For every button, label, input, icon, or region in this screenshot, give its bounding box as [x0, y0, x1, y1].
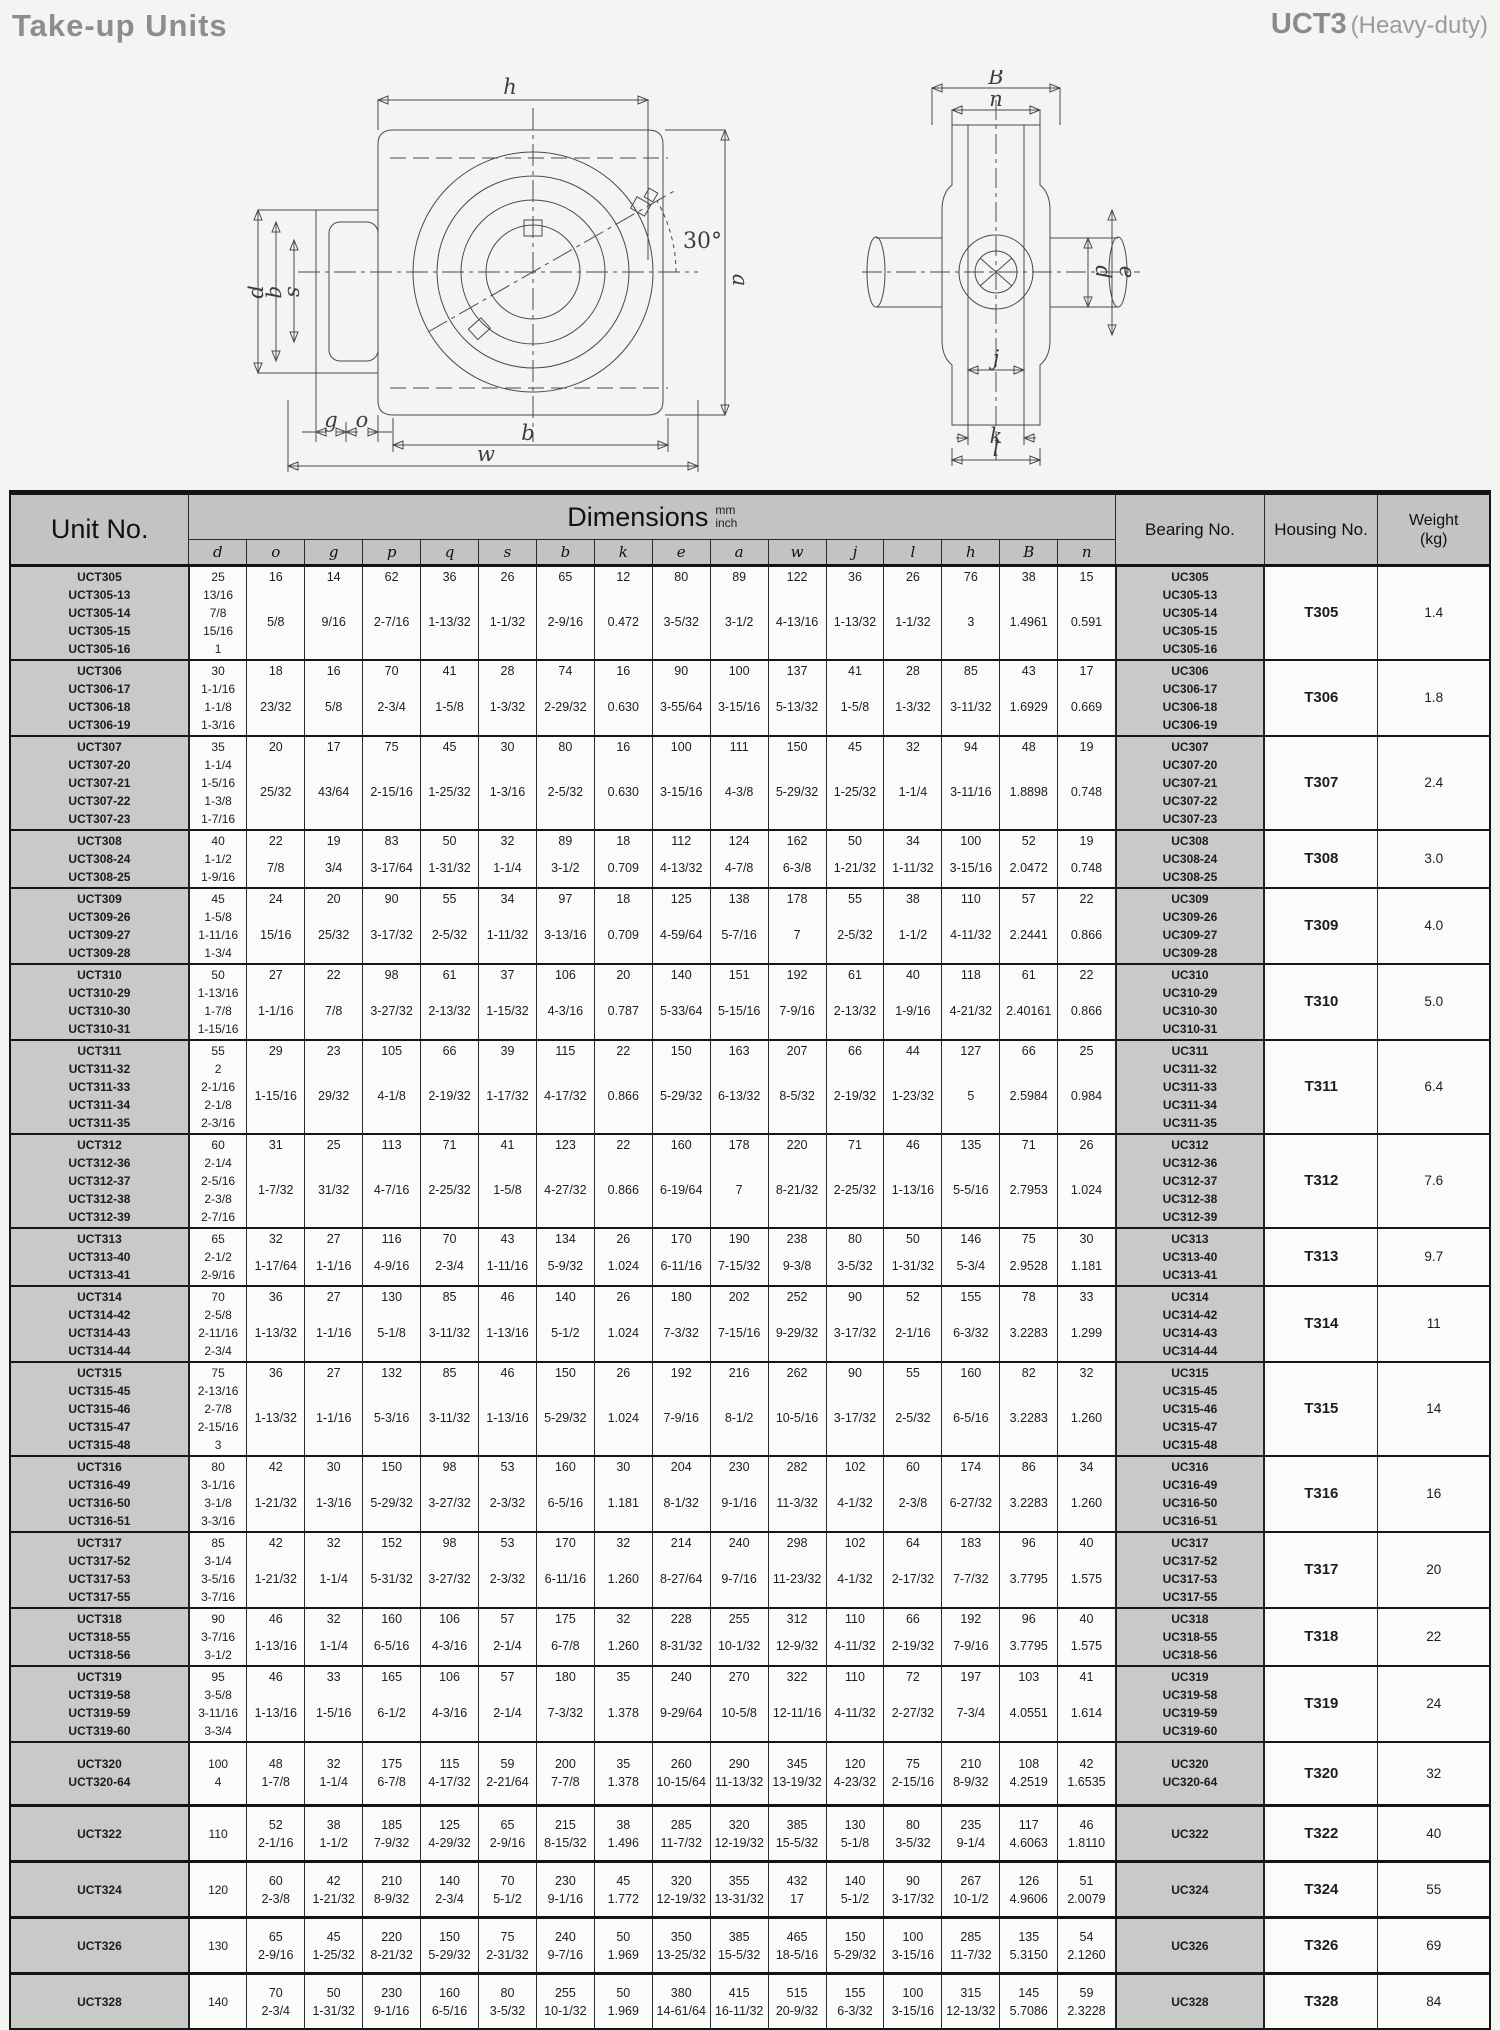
mm-value: 19	[305, 832, 362, 850]
unit-no-cell: UCT309UCT309-26UCT309-27UCT309-28	[10, 888, 189, 964]
dim-value-cell: 461-13/16	[247, 1666, 305, 1742]
inch-value: 4-13/16	[769, 586, 826, 658]
mm-value: 57	[479, 1610, 536, 1628]
dim-value-cell: 2389-3/8	[768, 1228, 826, 1286]
dim-value-cell: 220.866	[1058, 888, 1116, 964]
dim-value-cell: 35513-31/32	[710, 1862, 768, 1918]
bearing-no-cell: UC312UC312-36UC312-37UC312-38UC312-39	[1116, 1134, 1264, 1228]
dim-value-cell: 552-5/32	[421, 888, 479, 964]
inch-value: 2.9528	[1000, 1248, 1057, 1284]
bearing-no: UC316-51	[1117, 1512, 1263, 1530]
dim-value-cell: 1405-1/2	[536, 1286, 594, 1362]
dim-value-cell: 381-1/2	[884, 888, 942, 964]
bearing-no: UC311-35	[1117, 1114, 1263, 1132]
unit-group-row: UCT306UCT306-17UCT306-18UCT306-19301-1/1…	[10, 660, 1490, 736]
mm-value: 98	[421, 1458, 478, 1476]
dim-d-cell: 301-1/161-1/81-3/16	[189, 660, 247, 736]
dim-value-cell: 501-31/32	[421, 830, 479, 888]
mm-value: 204	[653, 1458, 710, 1476]
unit-no: UCT319-59	[11, 1704, 188, 1722]
mm-value: 48	[1000, 738, 1057, 756]
inch-value: 5.7086	[1000, 2002, 1057, 2020]
unit-no: UCT307-22	[11, 792, 188, 810]
inch-value: 6-5/16	[421, 2002, 478, 2020]
inch-value: 2-13/32	[421, 984, 478, 1038]
dim-value-cell: 2531/32	[305, 1134, 363, 1228]
inch-value: 3-1/2	[711, 586, 768, 658]
dim-value-cell: 853-11/32	[421, 1362, 479, 1456]
dim-value-cell: 1706-11/16	[652, 1228, 710, 1286]
inch-value: 4-3/16	[421, 1628, 478, 1664]
dim-value-cell: 1787	[768, 888, 826, 964]
unit-no: UCT317-52	[11, 1552, 188, 1570]
dim-value-cell: 361-13/32	[247, 1286, 305, 1362]
mm-value: 32	[884, 738, 941, 756]
mm-value: 80	[827, 1230, 884, 1248]
inch-value: 6-11/16	[653, 1248, 710, 1284]
dim-letter-header: h	[942, 540, 1000, 566]
mm-value: 17	[305, 738, 362, 756]
dim-value-cell: 361-13/32	[247, 1362, 305, 1456]
mm-value: 80	[884, 1816, 941, 1834]
dim-value-cell: 803-5/32	[479, 1974, 537, 2030]
mm-value: 20	[595, 966, 652, 984]
bearing-no: UC314	[1117, 1288, 1263, 1306]
dim-value-cell: 41516-11/32	[710, 1974, 768, 2030]
inch-value: 4.6063	[1000, 1834, 1057, 1852]
dim-value-cell: 592-21/64	[479, 1742, 537, 1806]
inch-value: 3-11/16	[942, 756, 999, 828]
dim-value-cell: 1385-7/16	[710, 888, 768, 964]
mm-value: 240	[711, 1534, 768, 1552]
mm-value: 85	[421, 1288, 478, 1306]
bearing-no-cell: UC315UC315-45UC315-46UC315-47UC315-48	[1116, 1362, 1264, 1456]
dim-value-cell: 200.787	[594, 964, 652, 1040]
bearing-no: UC309-26	[1117, 908, 1263, 926]
dim-value-cell: 1003-15/16	[942, 830, 1000, 888]
mm-value: 122	[769, 568, 826, 586]
mm-value: 125	[421, 1816, 478, 1834]
inch-value: 2-9/16	[537, 586, 594, 658]
inch-value: 1-1/4	[305, 1628, 362, 1664]
unit-group-row: UCT320UCT320-641004481-7/8321-1/41756-7/…	[10, 1742, 1490, 1806]
dim-value-cell: 46518-5/16	[768, 1918, 826, 1974]
housing-no-cell: T320	[1264, 1742, 1378, 1806]
inch-value: 1-13/16	[884, 1154, 941, 1226]
housing-no-cell: T316	[1264, 1456, 1378, 1532]
d-value: 2	[190, 1060, 246, 1078]
d-value: 3	[190, 1436, 246, 1454]
inch-value: 1-13/16	[479, 1382, 536, 1454]
inch-value: 1-5/16	[305, 1686, 362, 1740]
mm-value: 35	[595, 1668, 652, 1686]
mm-value: 96	[1000, 1534, 1057, 1552]
weight-value-cell: 84	[1378, 1974, 1490, 2030]
unit-no: UCT305-13	[11, 586, 188, 604]
d-value: 45	[190, 890, 246, 908]
mm-value: 298	[769, 1534, 826, 1552]
d-value: 1-7/8	[190, 1002, 246, 1020]
unit-no: UCT311-35	[11, 1114, 188, 1132]
weight-value-cell: 24	[1378, 1666, 1490, 1742]
mm-value: 22	[247, 832, 304, 850]
unit-no: UCT316-51	[11, 1512, 188, 1530]
mm-value: 75	[884, 1755, 941, 1773]
inch-value: 9-1/16	[363, 2002, 420, 2020]
mm-value: 55	[827, 890, 884, 908]
dim-value-cell: 1154-17/32	[421, 1742, 479, 1806]
unit-no: UCT318	[11, 1610, 188, 1628]
inch-value: 8-9/32	[942, 1773, 999, 1791]
inch-value: 4.2519	[1000, 1773, 1057, 1791]
mm-value: 105	[363, 1042, 420, 1060]
mm-value: 385	[711, 1928, 768, 1946]
mm-value: 150	[421, 1928, 478, 1946]
page-header: Take-up Units UCT3(Heavy-duty)	[12, 8, 1488, 44]
inch-value: 0.630	[595, 756, 652, 828]
mm-value: 98	[421, 1534, 478, 1552]
inch-value: 1.575	[1058, 1552, 1115, 1606]
dim-value-cell: 301-3/16	[305, 1456, 363, 1532]
inch-value: 5-31/32	[363, 1552, 420, 1606]
inch-value: 3-15/16	[942, 850, 999, 886]
unit-no-cell: UCT316UCT316-49UCT316-50UCT316-51	[10, 1456, 189, 1532]
dim-d-cell: 451-5/81-11/161-3/4	[189, 888, 247, 964]
mm-value: 215	[537, 1816, 594, 1834]
mm-value: 41	[421, 662, 478, 680]
housing-no-cell: T319	[1264, 1666, 1378, 1742]
inch-value: 6-11/16	[537, 1552, 594, 1606]
inch-value: 2-29/32	[537, 680, 594, 734]
inch-value: 1.260	[595, 1628, 652, 1664]
inch-value: 1-21/32	[305, 1890, 362, 1908]
bearing-no: UC305-16	[1117, 640, 1263, 658]
dim-value-cell: 1505-29/32	[421, 1918, 479, 1974]
dim-letter-header: b	[536, 540, 594, 566]
dim-value-cell: 461.8110	[1058, 1806, 1116, 1862]
mm-value: 36	[421, 568, 478, 586]
mm-value: 285	[653, 1816, 710, 1834]
dim-d-cell: 803-1/163-1/83-3/16	[189, 1456, 247, 1532]
mm-value: 102	[827, 1534, 884, 1552]
bearing-no: UC315	[1117, 1364, 1263, 1382]
dim-value-cell: 602-3/8	[884, 1456, 942, 1532]
mm-value: 80	[653, 568, 710, 586]
dim-value-cell: 752-15/16	[884, 1742, 942, 1806]
mm-value: 134	[537, 1230, 594, 1248]
d-value: 13/16	[190, 586, 246, 604]
mm-value: 36	[247, 1288, 304, 1306]
d-value: 40	[190, 832, 246, 850]
d-value: 3-7/16	[190, 1588, 246, 1606]
mm-value: 50	[827, 832, 884, 850]
unit-group-row: UCT328140702-3/4501-31/322309-1/161606-5…	[10, 1974, 1490, 2030]
inch-value: 4-7/8	[711, 850, 768, 886]
d-value: 1-1/16	[190, 680, 246, 698]
inch-value: 2-5/32	[537, 756, 594, 828]
dim-letter-header: d	[189, 540, 247, 566]
mm-value: 106	[537, 966, 594, 984]
weight-value-cell: 1.4	[1378, 566, 1490, 660]
mm-value: 192	[942, 1610, 999, 1628]
inch-value: 1.024	[595, 1382, 652, 1454]
bearing-no-cell: UC320UC320-64	[1116, 1742, 1264, 1806]
dim-d-cell: 853-1/43-5/163-7/16	[189, 1532, 247, 1608]
dim-value-cell: 532-3/32	[479, 1532, 537, 1608]
d-value: 1-5/8	[190, 908, 246, 926]
mm-value: 27	[247, 966, 304, 984]
dim-value-cell: 271-1/16	[305, 1362, 363, 1456]
mm-value: 41	[1058, 1668, 1115, 1686]
mm-value: 108	[1000, 1755, 1057, 1773]
inch-value: 2-3/4	[363, 680, 420, 734]
d-value: 1-5/16	[190, 774, 246, 792]
dim-value-cell: 2208-21/32	[363, 1918, 421, 1974]
housing-no-cell: T307	[1264, 736, 1378, 830]
mm-value: 46	[247, 1610, 304, 1628]
mm-value: 132	[363, 1364, 420, 1382]
front-view-drawing: h 30°	[228, 70, 868, 475]
mm-value: 180	[653, 1288, 710, 1306]
dim-value-cell: 401.575	[1058, 1532, 1116, 1608]
dim-value-cell: 501-21/32	[826, 830, 884, 888]
inch-value: 1-17/32	[479, 1060, 536, 1132]
dim-value-cell: 512.0079	[1058, 1862, 1116, 1918]
dim-d-cell: 903-7/163-1/2	[189, 1608, 247, 1666]
mm-value: 515	[769, 1984, 826, 2002]
inch-value: 1-5/8	[827, 680, 884, 734]
dim-value-cell: 1706-11/16	[536, 1532, 594, 1608]
unit-no-cell: UCT307UCT307-20UCT307-21UCT307-22UCT307-…	[10, 736, 189, 830]
inch-value: 4-1/8	[363, 1060, 420, 1132]
mm-value: 89	[711, 568, 768, 586]
mm-value: 180	[537, 1668, 594, 1686]
dim-value-cell: 451.772	[594, 1862, 652, 1918]
dim-value-cell: 2208-21/32	[768, 1134, 826, 1228]
inch-value: 25/32	[305, 908, 362, 962]
inch-value: 2-31/32	[479, 1946, 536, 1964]
inch-value: 2.0472	[1000, 850, 1057, 886]
inch-value: 9-29/32	[769, 1306, 826, 1360]
dim-value-cell: 1606-5/16	[536, 1456, 594, 1532]
dim-value-cell: 592.3228	[1058, 1974, 1116, 2030]
dim-value-cell: 1405-33/64	[652, 964, 710, 1040]
mm-value: 160	[421, 1984, 478, 2002]
d-value: 4	[190, 1773, 246, 1791]
dim-value-cell: 705-1/2	[479, 1862, 537, 1918]
mm-value: 115	[421, 1755, 478, 1773]
inch-value: 1-5/8	[479, 1154, 536, 1226]
dim-value-cell: 973-13/16	[536, 888, 594, 964]
mm-value: 22	[1058, 966, 1115, 984]
inch-value: 16-11/32	[711, 2002, 768, 2020]
dim-value-cell: 2025/32	[247, 736, 305, 830]
series-note: (Heavy-duty)	[1351, 12, 1488, 39]
d-value: 1-1/8	[190, 698, 246, 716]
inch-value: 9-7/16	[537, 1946, 594, 1964]
inch-value: 1-21/32	[247, 1552, 304, 1606]
inch-value: 2.2441	[1000, 908, 1057, 962]
inch-value: 3/4	[305, 850, 362, 886]
mm-value: 90	[827, 1288, 884, 1306]
inch-value: 6-13/32	[711, 1060, 768, 1132]
dim-value-cell: 702-3/4	[363, 660, 421, 736]
dim-value-cell: 321-1/4	[479, 830, 537, 888]
dim-value-cell: 2309-1/16	[710, 1456, 768, 1532]
inch-value: 3-17/32	[827, 1306, 884, 1360]
dim-value-cell: 853-11/32	[942, 660, 1000, 736]
inch-value: 0.669	[1058, 680, 1115, 734]
inch-value: 4-11/32	[827, 1628, 884, 1664]
inch-value: 5-3/16	[363, 1382, 420, 1454]
dim-value-cell: 2168-1/2	[710, 1362, 768, 1456]
mm-value: 100	[711, 662, 768, 680]
inch-value: 5	[942, 1060, 999, 1132]
dim-value-cell: 2415/16	[247, 888, 305, 964]
inch-value: 1-31/32	[884, 1248, 941, 1284]
housing-no-cell: T310	[1264, 964, 1378, 1040]
unit-no-cell: UCT324	[10, 1862, 189, 1918]
dim-value-cell: 170.669	[1058, 660, 1116, 736]
mm-value: 116	[363, 1230, 420, 1248]
unit-no: UCT310-31	[11, 1020, 188, 1038]
inch-value: 13-25/32	[653, 1946, 710, 1964]
mm-value: 24	[247, 890, 304, 908]
dim-value-cell: 542.1260	[1058, 1918, 1116, 1974]
mm-value: 285	[942, 1928, 999, 1946]
weight-value-cell: 5.0	[1378, 964, 1490, 1040]
weight-value-cell: 7.6	[1378, 1134, 1490, 1228]
mm-value: 89	[537, 832, 594, 850]
dim-value-cell: 1064-3/16	[421, 1666, 479, 1742]
unit-no: UCT310-30	[11, 1002, 188, 1020]
unit-no-cell: UCT326	[10, 1918, 189, 1974]
mm-value: 345	[769, 1755, 826, 1773]
unit-no-cell: UCT320UCT320-64	[10, 1742, 189, 1806]
mm-value: 103	[1000, 1668, 1057, 1686]
dim-value-cell: 431-11/16	[479, 1228, 537, 1286]
mm-value: 202	[711, 1288, 768, 1306]
mm-value: 75	[479, 1928, 536, 1946]
inch-value: 0.748	[1058, 756, 1115, 828]
inch-value: 1-13/32	[247, 1306, 304, 1360]
inch-value: 15-5/32	[711, 1946, 768, 1964]
housing-no-cell: T309	[1264, 888, 1378, 964]
unit-no: UCT306-17	[11, 680, 188, 698]
mm-value: 26	[595, 1288, 652, 1306]
mm-value: 282	[769, 1458, 826, 1476]
mm-value: 70	[421, 1230, 478, 1248]
inch-value: 3-5/32	[827, 1248, 884, 1284]
inch-value: 8-1/32	[653, 1476, 710, 1530]
dim-value-cell: 34513-19/32	[768, 1742, 826, 1806]
bearing-no: UC308-25	[1117, 868, 1263, 886]
mm-value: 19	[1058, 738, 1115, 756]
inch-value: 4.0551	[1000, 1686, 1057, 1740]
unit-group-row: UCT314UCT314-42UCT314-43UCT314-44702-5/8…	[10, 1286, 1490, 1362]
dim-value-cell: 35013-25/32	[652, 1918, 710, 1974]
dim-value-cell: 1054-1/8	[363, 1040, 421, 1134]
mm-value: 36	[827, 568, 884, 586]
mm-value: 150	[769, 738, 826, 756]
dim-value-cell: 421.6535	[1058, 1742, 1116, 1806]
inch-value: 8-5/32	[769, 1060, 826, 1132]
dim-letter-header: p	[363, 540, 421, 566]
mm-value: 16	[595, 738, 652, 756]
bearing-no: UC314-43	[1117, 1324, 1263, 1342]
dim-value-cell: 1084.2519	[1000, 1742, 1058, 1806]
unit-no: UCT306	[11, 662, 188, 680]
mm-value: 160	[653, 1136, 710, 1154]
dim-value-cell: 441-23/32	[884, 1040, 942, 1134]
mm-value: 220	[363, 1928, 420, 1946]
inch-value: 1-11/32	[479, 908, 536, 962]
inch-value: 3-11/32	[942, 680, 999, 734]
dim-value-cell: 1402-3/4	[421, 1862, 479, 1918]
bearing-no: UC319-59	[1117, 1704, 1263, 1722]
d-value: 35	[190, 738, 246, 756]
inch-value: 29/32	[305, 1060, 362, 1132]
bearing-no: UC315-45	[1117, 1382, 1263, 1400]
mm-value: 34	[479, 890, 536, 908]
inch-value: 4-11/32	[827, 1686, 884, 1740]
d-value: 2-3/8	[190, 1190, 246, 1208]
inch-value: 2.7953	[1000, 1154, 1057, 1226]
inch-value: 0.866	[595, 1154, 652, 1226]
bearing-no: UC319-60	[1117, 1722, 1263, 1740]
dim-value-cell: 1837-7/32	[942, 1532, 1000, 1608]
dim-value-cell: 2409-29/64	[652, 1666, 710, 1742]
dim-value-cell: 803-5/32	[652, 566, 710, 660]
d-value: 1-3/16	[190, 716, 246, 734]
unit-no: UCT312-38	[11, 1190, 188, 1208]
inch-value: 1-1/4	[305, 1773, 362, 1791]
dim-value-cell: 963.7795	[1000, 1532, 1058, 1608]
dim-value-cell: 120.472	[594, 566, 652, 660]
d-value: 1-13/16	[190, 984, 246, 1002]
weight-value-cell: 69	[1378, 1918, 1490, 1974]
dim-value-cell: 903-17/32	[826, 1362, 884, 1456]
mm-value: 28	[479, 662, 536, 680]
mm-value: 65	[537, 568, 594, 586]
dim-label-e: e	[1115, 266, 1139, 278]
bearing-no: UC320-64	[1117, 1773, 1263, 1791]
inch-value: 9-3/8	[769, 1248, 826, 1284]
d-value: 1-7/16	[190, 810, 246, 828]
bearing-no: UC312-37	[1117, 1172, 1263, 1190]
inch-value: 6-3/32	[942, 1306, 999, 1360]
housing-no-header: Housing No.	[1264, 493, 1378, 566]
inch-value: 2-3/8	[247, 1890, 304, 1908]
mm-value: 255	[711, 1610, 768, 1628]
mm-value: 312	[769, 1610, 826, 1628]
dim-value-cell: 341-11/32	[884, 830, 942, 888]
mm-value: 380	[653, 1984, 710, 2002]
mm-value: 130	[363, 1288, 420, 1306]
inch-value: 1.299	[1058, 1306, 1115, 1360]
dim-value-cell: 301.181	[594, 1456, 652, 1532]
dim-value-cell: 1024-1/32	[826, 1456, 884, 1532]
mm-value: 162	[769, 832, 826, 850]
mm-value: 96	[1000, 1610, 1057, 1628]
inch-value: 1-17/64	[247, 1248, 304, 1284]
dim-d-cell: 5522-1/162-1/82-3/16	[189, 1040, 247, 1134]
dim-value-cell: 1204-23/32	[826, 1742, 884, 1806]
dim-value-cell: 662.5984	[1000, 1040, 1058, 1134]
inch-value: 3.2283	[1000, 1476, 1057, 1530]
unit-no: UCT320-64	[11, 1773, 188, 1791]
inch-value: 4-13/32	[653, 850, 710, 886]
